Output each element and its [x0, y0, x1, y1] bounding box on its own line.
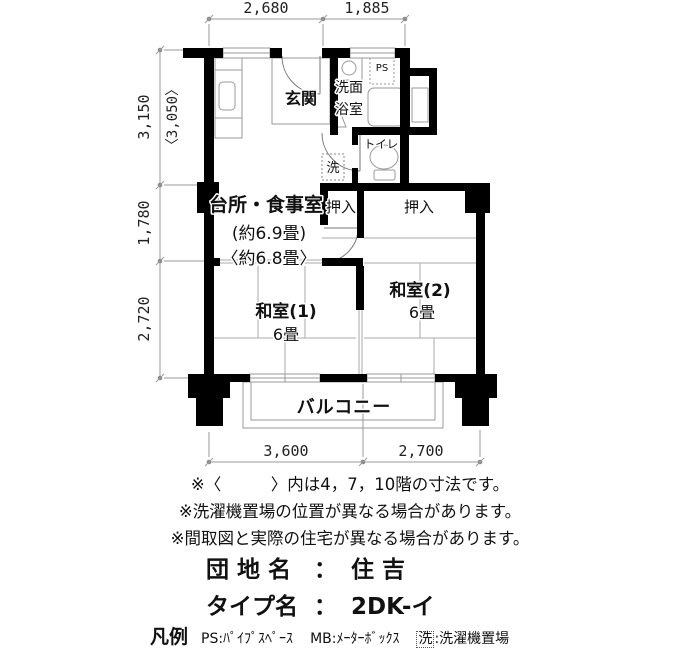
legend-laundry-label: :洗濯機置場 [434, 628, 509, 648]
washbasin [336, 56, 362, 80]
label-kitchen-size: (約6.9畳) [232, 224, 306, 244]
estate-name-row: 団 地 名：住 吉 [206, 552, 434, 589]
legend-ps: PS:ﾊﾟｲﾌﾟｽﾍﾟｰｽ [201, 628, 293, 648]
label-pipe-space: PS [376, 63, 388, 74]
legend-mb: MB:ﾒｰﾀｰﾎﾞｯｸｽ [310, 628, 399, 648]
dim-left-primary: 3,150 [135, 94, 153, 139]
label-washitsu1-size: 6畳 [273, 325, 299, 344]
kitchen-sink [219, 82, 235, 110]
estate-colon: ： [314, 552, 337, 589]
note-actual-difference: ※間取図と実際の住宅が異なる場合があります。 [0, 525, 700, 552]
meter-box [412, 88, 428, 122]
type-name-label: タイプ名 [206, 589, 312, 626]
dk-washitsu-door [324, 228, 358, 262]
label-balcony: バルコニー [297, 397, 392, 418]
legend-heading: 凡例 [150, 622, 188, 649]
note-floor-dims: ※〈 〉内は4，7，10階の寸法です。 [0, 471, 700, 498]
dim-left-mid: 1,780 [135, 200, 153, 245]
dim-top-left: 2,680 [243, 0, 288, 17]
kitchen-counter [215, 58, 242, 138]
legend: 凡例 PS:ﾊﾟｲﾌﾟｽﾍﾟｰｽ MB:ﾒｰﾀｰﾎﾞｯｸｽ 洗:洗濯機置場 [150, 622, 690, 649]
label-genkan: 玄関 [285, 89, 317, 108]
floor-plan-page: 2,680 1,885 3,150 〈3,050〉 1,780 2,720 3,… [0, 0, 700, 650]
estate-name-label: 団 地 名 [206, 552, 312, 589]
label-kitchen-size-alt: 〈約6.8畳〉 [221, 249, 316, 269]
dim-left-alt: 〈3,050〉 [165, 82, 181, 152]
label-closet-right: 押入 [404, 198, 434, 216]
type-name-row: タイプ名：2DK-イ [206, 589, 434, 626]
plan-notes: ※〈 〉内は4，7，10階の寸法です。 ※洗濯機置場の位置が異なる場合があります… [0, 471, 700, 552]
estate-name-value: 住 吉 [351, 557, 405, 583]
dim-bottom-left: 3,600 [263, 442, 308, 460]
bathtub [368, 88, 404, 126]
label-laundry: 洗 [326, 161, 339, 176]
dim-top-right: 1,885 [344, 0, 389, 17]
dim-left-bottom: 2,720 [135, 296, 153, 341]
label-washroom-1: 洗面 [335, 80, 363, 96]
property-info: 団 地 名：住 吉 タイプ名：2DK-イ [206, 552, 434, 626]
note-laundry-position: ※洗濯機置場の位置が異なる場合があります。 [0, 498, 700, 525]
label-washitsu2: 和室(2) [389, 280, 450, 301]
label-kitchen: 台所・食事室 [209, 193, 323, 216]
dim-bottom-right: 2,700 [398, 442, 443, 460]
label-washroom-2: 浴室 [335, 101, 363, 118]
label-closet-left: 押入 [326, 198, 356, 216]
type-name-value: 2DK-イ [351, 594, 434, 620]
label-washitsu2-size: 6畳 [409, 303, 435, 322]
label-toilet: トイレ [364, 137, 399, 151]
legend-laundry-mark: 洗 [416, 631, 434, 648]
label-washitsu1: 和室(1) [255, 301, 316, 322]
legend-laundry: 洗:洗濯機置場 [416, 628, 509, 648]
type-colon: ： [314, 589, 337, 626]
